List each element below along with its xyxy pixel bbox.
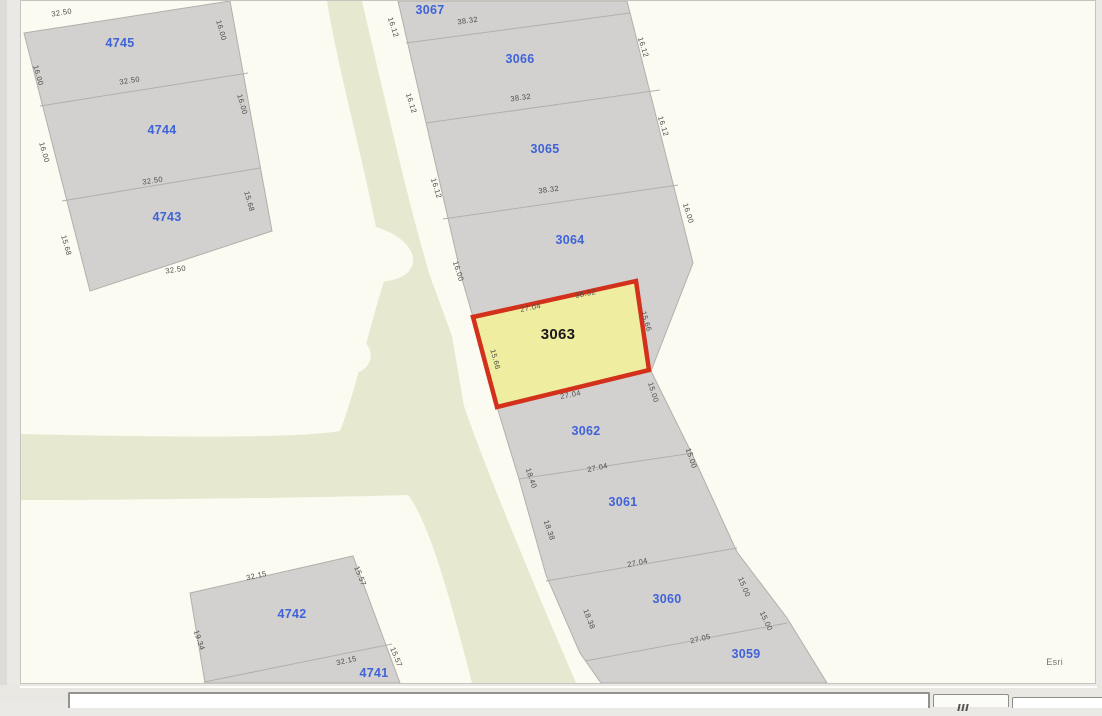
page-left-gutter (0, 0, 7, 702)
parcel-label-4745[interactable]: 4745 (105, 36, 134, 50)
parcel-label-3065[interactable]: 3065 (530, 142, 559, 156)
parcel-label-3061[interactable]: 3061 (608, 495, 637, 509)
parcel-label-3067[interactable]: 3067 (415, 3, 444, 17)
parcel-label-3063[interactable]: 3063 (541, 326, 576, 343)
parcel-label-3064[interactable]: 3064 (555, 233, 584, 247)
bottom-strip (0, 685, 1102, 702)
grip-icon (958, 698, 972, 706)
parcel-label-4744[interactable]: 4744 (147, 123, 176, 137)
map-attribution: Esri (1046, 657, 1063, 667)
parcel-label-3062[interactable]: 3062 (571, 424, 600, 438)
map-bottom-edge (20, 686, 1097, 688)
bottom-panel[interactable] (68, 692, 930, 708)
parcel-map-canvas[interactable]: 32.5016.0016.0032.5016.0016.0032.5015.68… (21, 1, 1095, 683)
parcel-label-4742[interactable]: 4742 (277, 607, 306, 621)
parcel-label-3060[interactable]: 3060 (652, 592, 681, 606)
map-viewport[interactable]: 32.5016.0016.0032.5016.0016.0032.5015.68… (20, 0, 1096, 684)
bottom-toolbar-button[interactable] (933, 694, 1009, 707)
bottom-right-panel[interactable] (1012, 697, 1102, 708)
parcel-label-3066[interactable]: 3066 (505, 52, 534, 66)
parcel-label-4741[interactable]: 4741 (359, 666, 388, 680)
parcel-label-3059[interactable]: 3059 (731, 647, 760, 661)
parcel-label-4743[interactable]: 4743 (152, 210, 181, 224)
